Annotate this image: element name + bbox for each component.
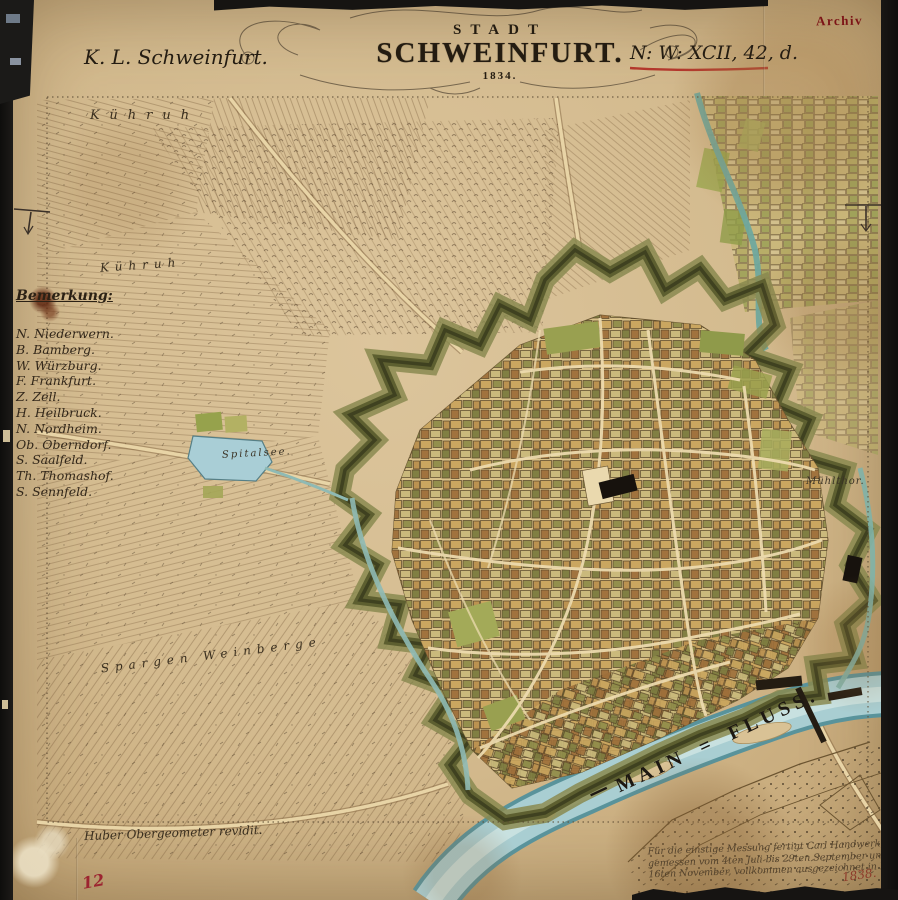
binding-chip xyxy=(6,14,20,23)
legend-item: Th. Thomashof. xyxy=(16,468,114,484)
legend-item: N. Nordheim. xyxy=(16,421,114,437)
legend-block: Bemerkung: N. Niederwern. B. Bamberg. W.… xyxy=(16,288,114,500)
map-sheet: STADT SCHWEINFURT. 1834. K. L. Schweinfu… xyxy=(0,0,898,900)
sheet-ref-right: N: W: XCII, 42, d. xyxy=(630,42,798,64)
legend-item: Ob. Oberndorf. xyxy=(16,437,114,453)
legend-item: N. Niederwern. xyxy=(16,326,114,342)
binding-edge-right xyxy=(881,0,898,900)
map-artwork xyxy=(0,0,898,900)
legend-item: B. Bamberg. xyxy=(16,342,114,358)
binding-chip xyxy=(2,700,8,709)
legend-item: H. Heilbruck. xyxy=(16,405,114,421)
archive-stamp: Archiv xyxy=(816,13,863,30)
binding-edge-left xyxy=(0,0,13,900)
label-muehlthor: Mühlthor. xyxy=(806,476,865,487)
map-title-block: STADT SCHWEINFURT. 1834. xyxy=(330,22,670,82)
legend-item: W. Würzburg. xyxy=(16,358,114,374)
legend-item: S. Saalfeld. xyxy=(16,452,114,468)
sheet-ref-left: K. L. Schweinfurt. xyxy=(84,45,268,69)
sheet-number: 12 xyxy=(81,870,106,893)
legend-title: Bemerkung: xyxy=(16,288,114,304)
legend-item: Z. Zell. xyxy=(16,389,114,405)
title-year: 1834. xyxy=(330,70,670,82)
legend-item: F. Frankfurt. xyxy=(16,373,114,389)
binding-chip xyxy=(10,58,21,65)
title-schweinfurt: SCHWEINFURT. xyxy=(330,37,670,70)
binding-chip xyxy=(3,430,10,442)
label-kuehruh-top: Kühruh xyxy=(90,108,199,123)
legend-item: S. Sennfeld. xyxy=(16,484,114,500)
